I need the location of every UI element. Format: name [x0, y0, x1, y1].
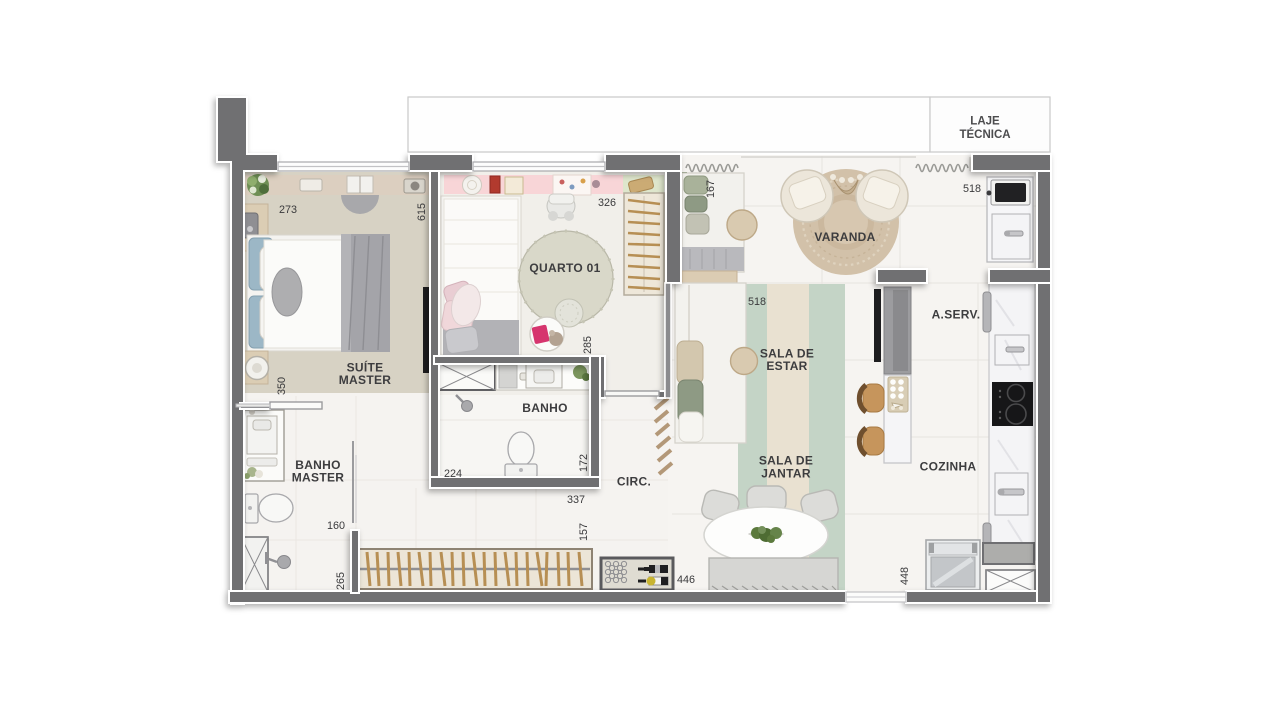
svg-text:172: 172	[578, 454, 590, 472]
svg-text:TÉCNICA: TÉCNICA	[959, 128, 1010, 141]
svg-text:MASTER: MASTER	[292, 471, 344, 485]
svg-text:MASTER: MASTER	[339, 373, 391, 387]
svg-text:265: 265	[335, 572, 347, 590]
svg-text:518: 518	[963, 183, 981, 195]
svg-text:615: 615	[416, 203, 428, 221]
svg-text:448: 448	[899, 567, 911, 585]
svg-text:SALA DE: SALA DE	[759, 454, 813, 468]
svg-text:518: 518	[748, 296, 766, 308]
svg-text:224: 224	[444, 468, 462, 480]
svg-text:446: 446	[677, 574, 695, 586]
svg-text:COZINHA: COZINHA	[920, 460, 977, 474]
svg-text:326: 326	[598, 197, 616, 209]
svg-text:273: 273	[279, 204, 297, 216]
svg-text:QUARTO 01: QUARTO 01	[529, 261, 600, 275]
svg-text:BANHO: BANHO	[522, 401, 568, 415]
svg-text:A.SERV.: A.SERV.	[932, 308, 981, 322]
svg-text:285: 285	[582, 336, 594, 354]
svg-text:JANTAR: JANTAR	[761, 467, 811, 481]
svg-text:167: 167	[705, 180, 717, 198]
svg-text:157: 157	[578, 523, 590, 541]
svg-text:VARANDA: VARANDA	[814, 230, 875, 244]
svg-text:LAJE: LAJE	[970, 116, 1000, 128]
svg-text:ESTAR: ESTAR	[766, 359, 807, 373]
svg-text:337: 337	[567, 494, 585, 506]
svg-text:350: 350	[276, 377, 288, 395]
svg-text:CIRC.: CIRC.	[617, 475, 651, 489]
svg-text:160: 160	[327, 520, 345, 532]
